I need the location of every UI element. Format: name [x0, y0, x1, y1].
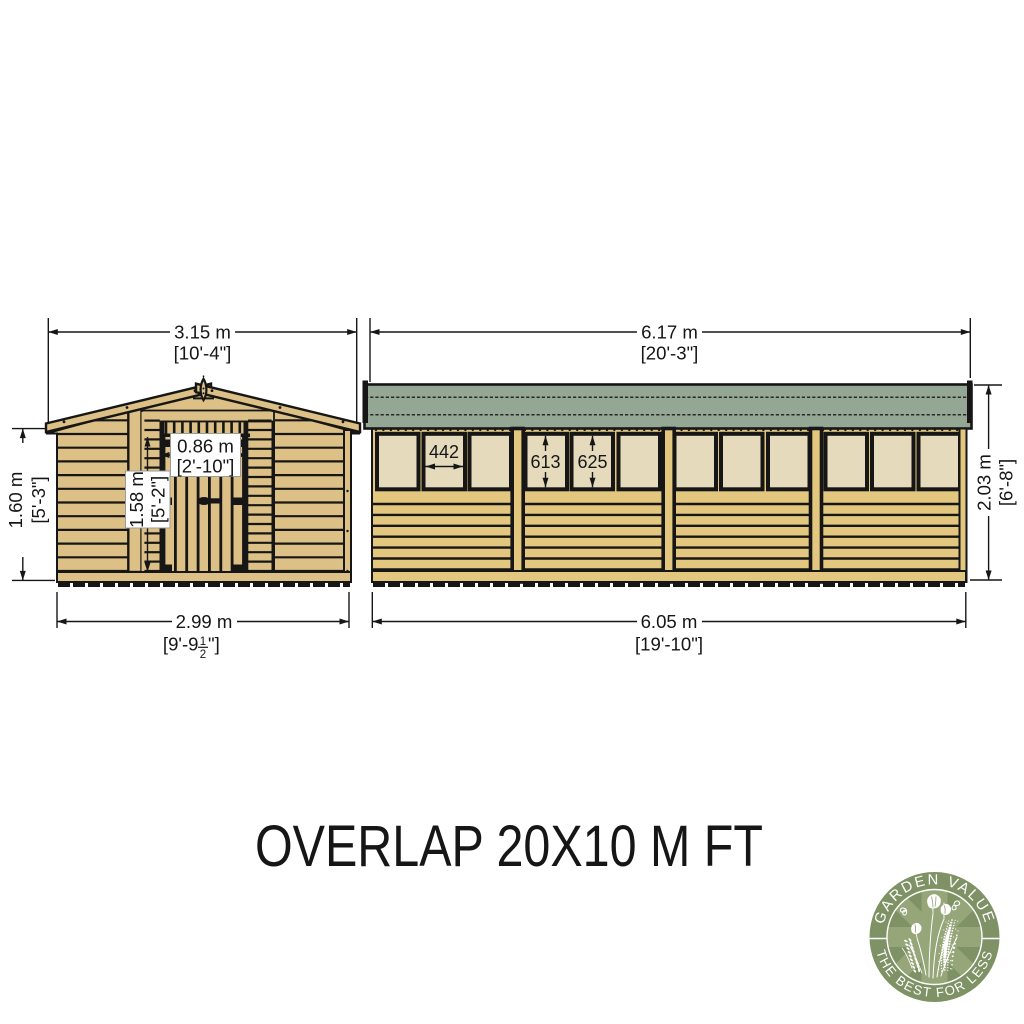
svg-text:2: 2 — [200, 649, 206, 661]
svg-text:OVERLAP 20X10 M FT: OVERLAP 20X10 M FT — [255, 814, 763, 879]
svg-text:2.99 m: 2.99 m — [176, 611, 233, 632]
svg-text:6.17 m: 6.17 m — [641, 322, 698, 343]
svg-text:[19'-10"]: [19'-10"] — [635, 634, 703, 655]
svg-text:613: 613 — [530, 452, 560, 472]
svg-text:625: 625 — [577, 452, 607, 472]
svg-text:1.60 m: 1.60 m — [5, 472, 26, 529]
svg-text:3.15 m: 3.15 m — [174, 322, 231, 343]
svg-text:[20'-3"]: [20'-3"] — [641, 343, 699, 364]
svg-text:"]: "] — [208, 634, 220, 655]
svg-text:1: 1 — [200, 636, 206, 648]
svg-text:[2'-10"]: [2'-10"] — [177, 456, 235, 477]
svg-text:[9'-9: [9'-9 — [163, 634, 199, 655]
svg-text:6.05 m: 6.05 m — [641, 611, 698, 632]
svg-text:0.86 m: 0.86 m — [177, 436, 234, 457]
svg-text:[5'-3"]: [5'-3"] — [28, 476, 49, 523]
svg-text:442: 442 — [429, 442, 459, 462]
svg-text:2.03 m: 2.03 m — [974, 454, 995, 511]
svg-text:1.58 m: 1.58 m — [126, 471, 147, 528]
svg-text:[6'-8"]: [6'-8"] — [996, 459, 1017, 506]
svg-text:[10'-4"]: [10'-4"] — [174, 343, 232, 364]
svg-text:[5'-2"]: [5'-2"] — [148, 476, 169, 523]
